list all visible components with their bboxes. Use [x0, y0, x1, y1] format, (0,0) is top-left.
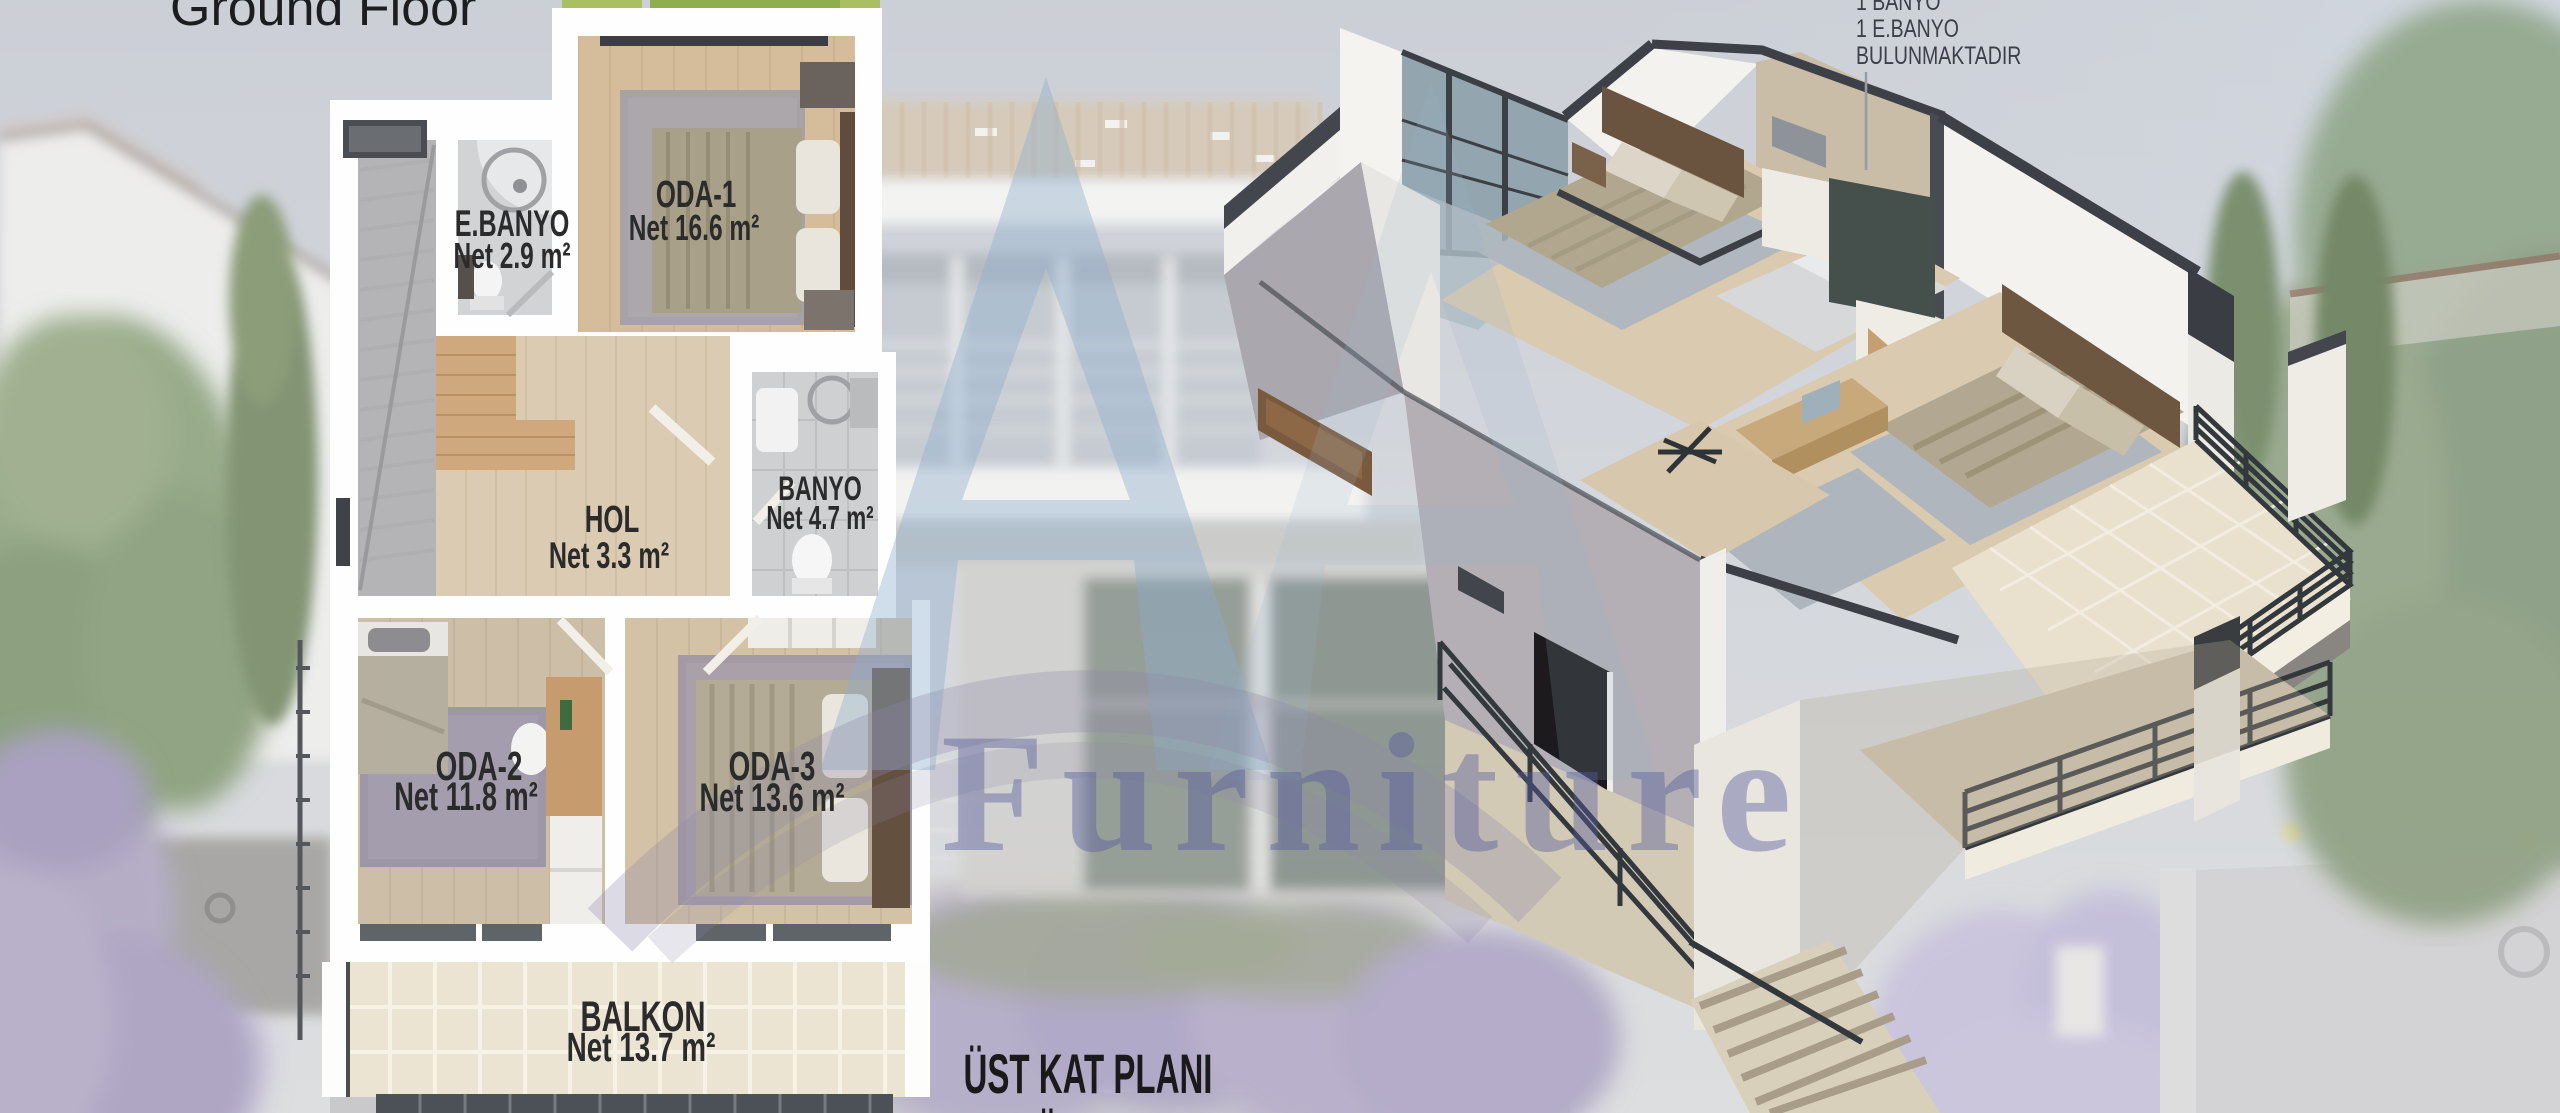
svg-text:ÜST KAT PLANI: ÜST KAT PLANI	[964, 1042, 1213, 1105]
svg-text:Net 2.9 m²: Net 2.9 m²	[454, 235, 571, 276]
svg-text:Net 16.6 m²: Net 16.6 m²	[629, 207, 760, 248]
svg-text:BULUNMAKTADIR: BULUNMAKTADIR	[1856, 42, 2021, 70]
svg-text:BRÜT 99.4 m²: BRÜT 99.4 m²	[988, 1105, 1203, 1113]
svg-text:Ground Floor: Ground Floor	[170, 0, 476, 37]
svg-text:Net 13.6 m²: Net 13.6 m²	[699, 776, 844, 820]
svg-text:Furniture: Furniture	[941, 699, 1809, 887]
svg-text:Net 3.3 m²: Net 3.3 m²	[549, 534, 669, 576]
svg-text:Net 13.7 m²: Net 13.7 m²	[567, 1025, 716, 1071]
svg-text:1 BANYO: 1 BANYO	[1856, 0, 1940, 16]
svg-text:Net 4.7 m²: Net 4.7 m²	[766, 499, 873, 536]
svg-text:Net 11.8 m²: Net 11.8 m²	[394, 775, 538, 819]
svg-text:1 E.BANYO: 1 E.BANYO	[1856, 15, 1959, 43]
